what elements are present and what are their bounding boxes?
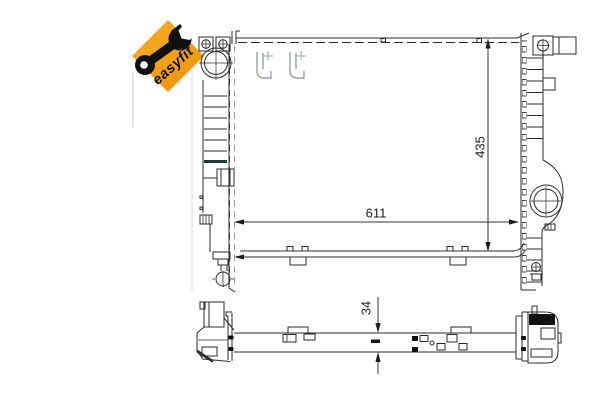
top-tank xyxy=(232,31,529,44)
clip xyxy=(257,51,273,78)
product-drawing-page: easyfit xyxy=(0,0,600,400)
right-end-tank xyxy=(516,306,561,363)
height-value: 435 xyxy=(473,136,488,158)
left-tank xyxy=(199,37,235,292)
side-view xyxy=(197,302,561,363)
core-bar xyxy=(234,327,516,352)
arrow-right xyxy=(509,219,519,224)
front-view xyxy=(199,31,576,292)
end-cap-dark xyxy=(529,314,555,325)
arrow-left xyxy=(234,219,244,224)
left-tank-fins xyxy=(204,96,227,151)
dimension-depth: 34 xyxy=(360,297,381,374)
top-tab xyxy=(288,327,308,333)
depth-value: 34 xyxy=(360,301,374,315)
clip xyxy=(290,51,306,78)
arrow-down xyxy=(375,323,380,333)
easyfit-badge: easyfit xyxy=(132,20,204,92)
left-castellation xyxy=(230,44,235,288)
left-end-tank xyxy=(197,302,234,362)
right-tank-fins-upper xyxy=(527,58,543,139)
arrow-up xyxy=(375,352,380,362)
port-bulge xyxy=(542,160,563,233)
top-tab xyxy=(451,327,471,333)
bottom-bracket xyxy=(447,247,468,266)
right-castellation xyxy=(522,40,527,288)
width-value: 611 xyxy=(366,206,387,221)
dimension-height: 435 xyxy=(473,39,491,253)
right-tank-fins-lower xyxy=(527,238,542,282)
mounting-clips xyxy=(257,51,306,78)
right-tank xyxy=(521,33,576,290)
dark-fin xyxy=(204,160,227,163)
dimension-width: 611 xyxy=(234,206,519,225)
technical-drawing: easyfit xyxy=(0,0,600,400)
top-bracket xyxy=(533,36,576,55)
center-dowel xyxy=(371,340,380,344)
mount-foot xyxy=(200,215,212,224)
bottom-bracket xyxy=(287,247,308,266)
arrow-up xyxy=(485,39,490,49)
core-bottom xyxy=(234,243,525,265)
